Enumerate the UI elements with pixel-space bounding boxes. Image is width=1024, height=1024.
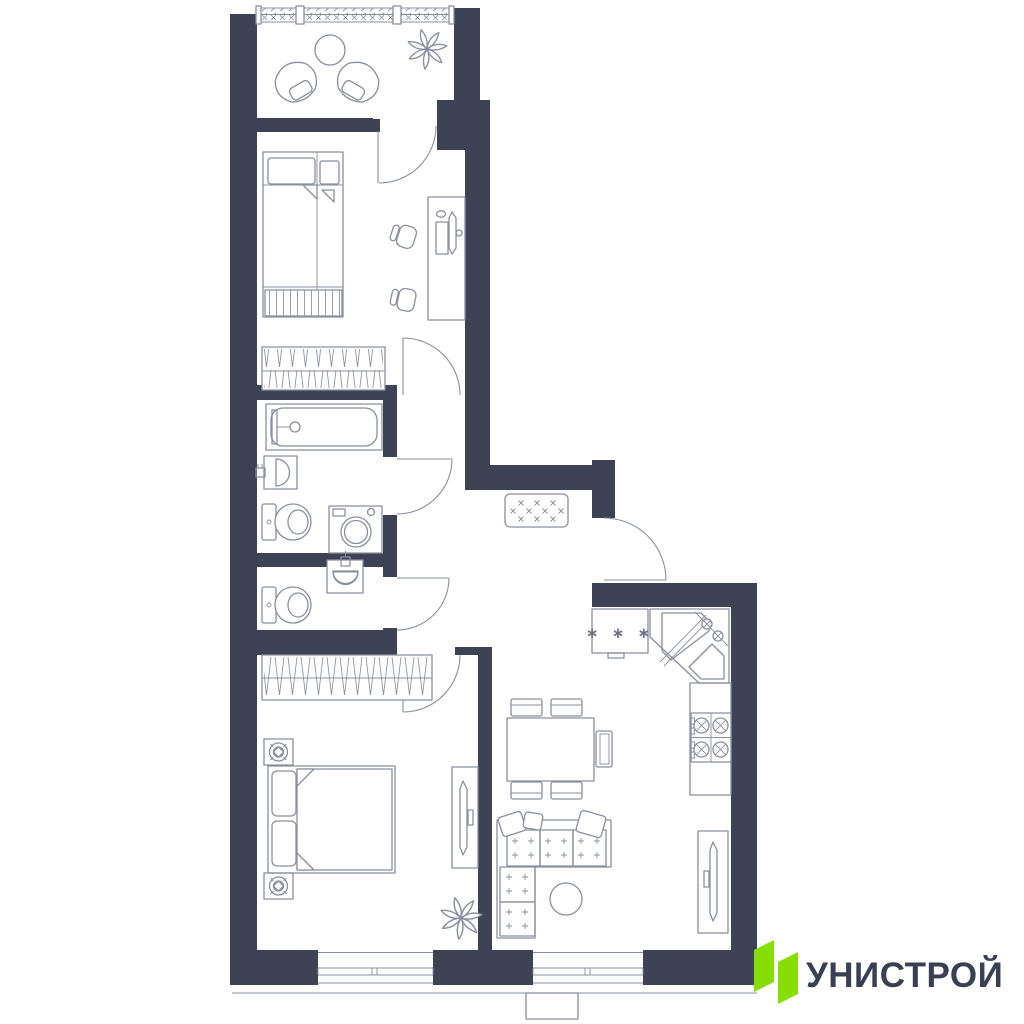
room-bedroom-1 xyxy=(262,152,465,390)
nightstand-bottom xyxy=(264,873,293,899)
floor-plan: ∗ ∗ ∗ xyxy=(0,0,1024,1024)
unistroy-logo: УНИСТРОЙ xyxy=(754,940,1003,1004)
dining-chair xyxy=(511,782,542,799)
wall-bottom-exterior xyxy=(230,950,757,985)
wall-bath-right-bottom xyxy=(383,515,397,567)
blanket xyxy=(297,769,392,870)
unistroy-logo-text: УНИСТРОЙ xyxy=(806,955,1003,995)
wardrobe-bedroom2 xyxy=(262,655,432,700)
balcony-door xyxy=(378,126,436,183)
wall-balcony-divider xyxy=(257,118,373,132)
toilet-bowl xyxy=(275,587,311,623)
tv-console-bedroom2 xyxy=(452,767,478,868)
sofa-pillow xyxy=(497,811,526,837)
office-chair xyxy=(388,222,418,250)
wall-bedroom1-right xyxy=(465,150,490,470)
wall-bedroom2-top xyxy=(257,630,383,655)
wall-left-exterior xyxy=(230,14,257,985)
wall-wc-right-bottom xyxy=(383,628,397,655)
room-hallway xyxy=(505,494,568,527)
balcony-round-table xyxy=(315,35,345,65)
glazing-mullion xyxy=(393,6,401,24)
bedroom1-door xyxy=(403,338,460,395)
blanket-fold xyxy=(297,769,314,786)
fridge-freezer: ∗ ∗ ∗ xyxy=(586,609,654,658)
dining-chair xyxy=(596,731,612,767)
room-bathroom xyxy=(256,404,382,553)
room-kitchen-living: ∗ ∗ ∗ xyxy=(497,609,731,938)
room-bedroom-2 xyxy=(262,655,482,939)
wc-toilet xyxy=(262,587,311,623)
dining-chair xyxy=(551,699,582,716)
balcony-armchair-left xyxy=(268,55,323,109)
wc-door xyxy=(397,578,449,630)
blanket-fold xyxy=(297,853,314,870)
sofa-pillow xyxy=(523,812,544,831)
wall-right-exterior xyxy=(731,583,757,985)
bedroom2-plant-icon xyxy=(440,897,481,939)
unistroy-logo-icon xyxy=(754,940,798,1004)
sink-faucet-icon xyxy=(713,631,723,641)
wall-bedroom2-living-divider xyxy=(478,647,492,958)
corner-sink-unit xyxy=(650,609,729,683)
dining-table xyxy=(507,718,594,781)
nightstand-top xyxy=(264,739,293,765)
bottom-window-2 xyxy=(533,950,643,985)
dining-chair xyxy=(551,782,582,799)
pillow xyxy=(272,771,296,816)
dining-set xyxy=(507,699,612,799)
wall-hall-top xyxy=(465,465,597,490)
tv-console-living xyxy=(698,831,728,933)
sink-basin xyxy=(689,644,724,679)
wall-bath-wc-divider xyxy=(257,553,383,567)
glazing-mullion xyxy=(296,6,304,24)
dining-chair xyxy=(511,699,542,716)
balcony-glazing xyxy=(256,6,454,24)
pillow xyxy=(320,161,339,184)
pillow xyxy=(268,158,315,184)
corner-sofa xyxy=(497,810,611,938)
exterior-ground-line xyxy=(232,993,757,1019)
entrance-door xyxy=(604,518,666,580)
wall-step-block xyxy=(437,100,490,150)
desk xyxy=(428,197,465,320)
doormat xyxy=(505,494,568,527)
blanket-fold xyxy=(303,185,317,199)
room-balcony xyxy=(268,29,447,109)
bottom-window-1 xyxy=(318,950,433,985)
bathroom-door xyxy=(397,459,452,514)
toilet-tank xyxy=(262,504,276,540)
tv-icon xyxy=(710,842,717,921)
wall-bath-right-top xyxy=(383,385,397,457)
bathroom-washbasin xyxy=(256,456,297,489)
pillow xyxy=(272,821,296,866)
wardrobe-bedroom1 xyxy=(262,347,385,390)
cooktop xyxy=(691,713,731,762)
monitor-icon xyxy=(449,212,456,254)
balcony-plant-icon xyxy=(407,29,447,69)
exterior-ledge xyxy=(526,993,578,1019)
wall-wc-right-top xyxy=(383,567,397,577)
blanket-fold xyxy=(322,190,334,202)
walls xyxy=(230,8,757,985)
bath-faucet-icon xyxy=(290,422,300,432)
floor-plan-canvas: ∗ ∗ ∗ xyxy=(0,0,1024,1024)
bathroom-toilet xyxy=(262,504,311,540)
wall-entry-jamb xyxy=(592,460,615,518)
office-chair xyxy=(389,286,417,313)
single-bed xyxy=(263,152,343,317)
toilet-tank xyxy=(262,587,276,623)
sink-faucet-icon xyxy=(702,619,712,629)
bathtub xyxy=(266,404,382,450)
coffee-table xyxy=(550,883,582,915)
washing-machine xyxy=(329,506,382,553)
toilet-bowl xyxy=(275,504,311,540)
freezer-marks: ∗ ∗ ∗ xyxy=(586,624,654,642)
double-bed xyxy=(268,766,395,873)
wall-door-jamb xyxy=(373,119,380,132)
sofa-pillow xyxy=(575,810,606,838)
tv-icon xyxy=(460,781,467,855)
